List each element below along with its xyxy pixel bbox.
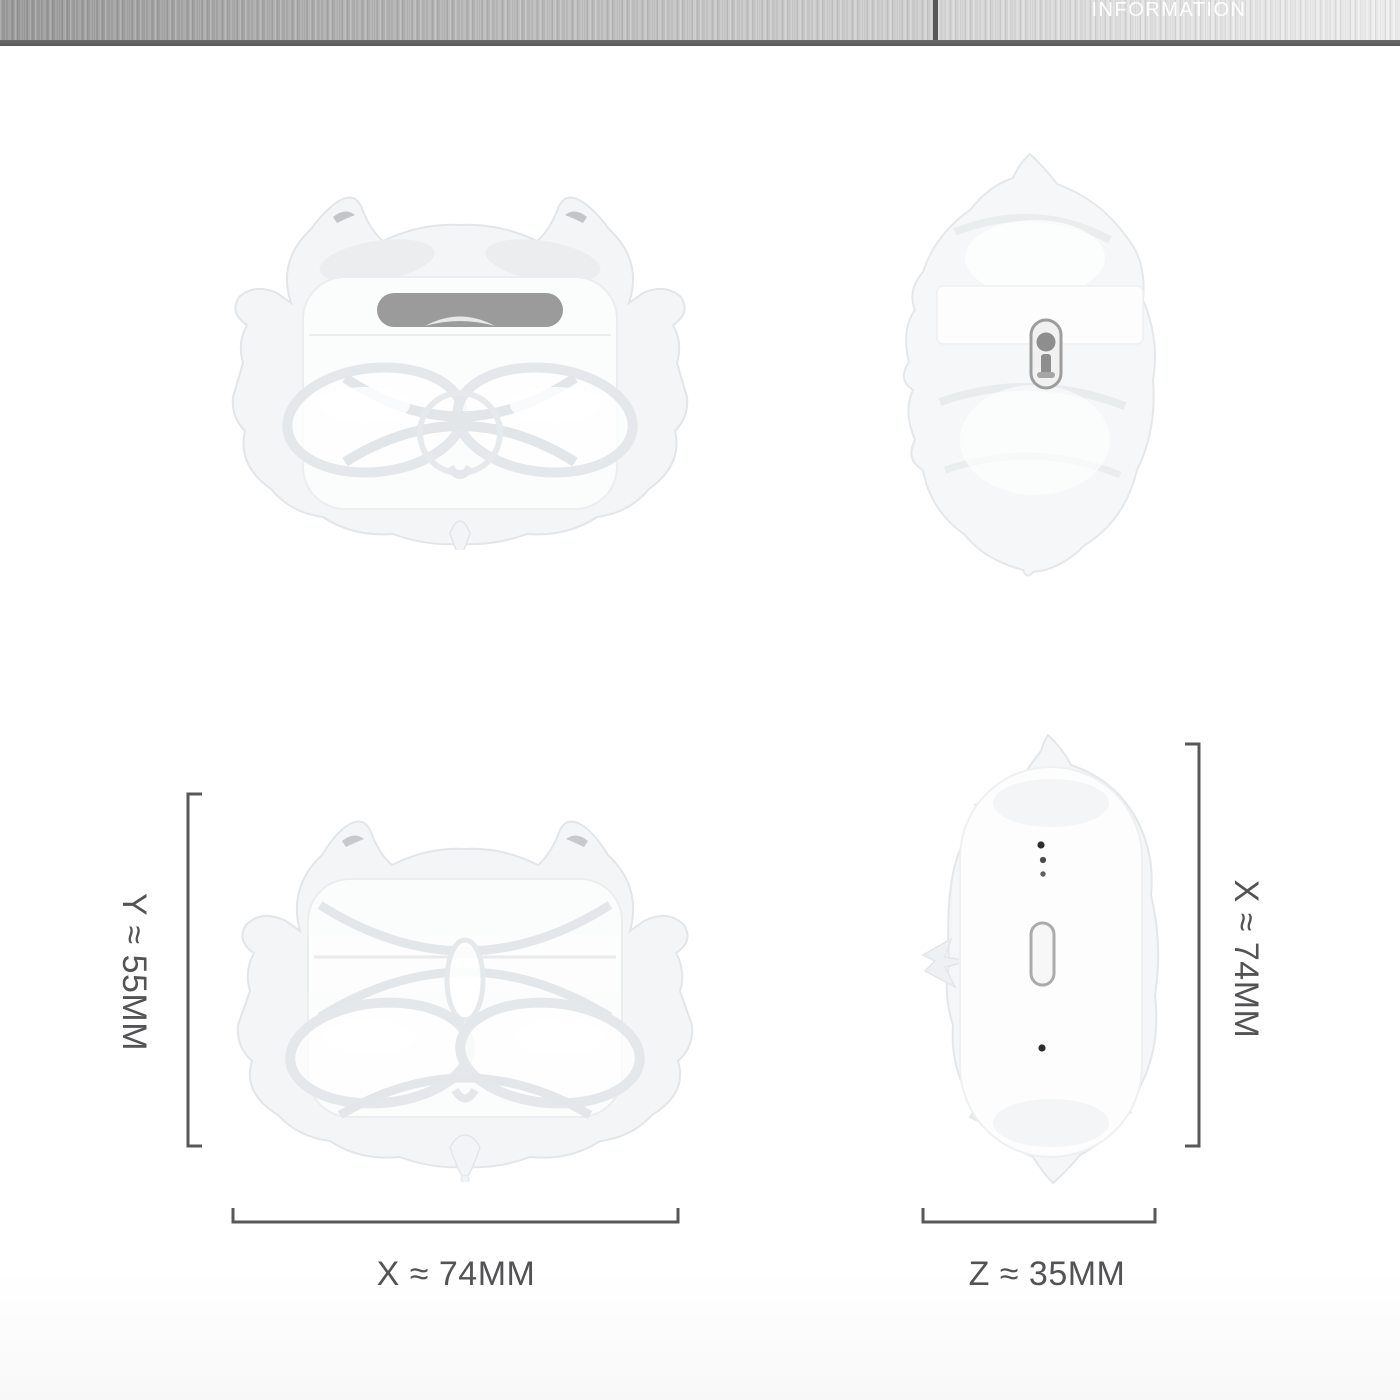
- depth-dimension-bracket: [923, 1208, 1155, 1222]
- height-dimension-bracket: [188, 794, 202, 1146]
- header-title: INFORMATION: [938, 0, 1400, 23]
- front-open-view: [225, 165, 695, 550]
- dimension-overlay: [0, 0, 1400, 1400]
- hinge-pin: [1031, 320, 1061, 388]
- height-dimension-label: Y ≈ 55MM: [112, 822, 156, 1122]
- header-metal-left: [0, 0, 933, 40]
- width-front-dimension-bracket: [233, 1208, 678, 1222]
- clear-shell: [904, 154, 1155, 576]
- width-side-dimension-label: X ≈ 74MM: [1224, 809, 1268, 1109]
- header-bar: INFORMATION: [0, 0, 1400, 46]
- lower-dot: [1038, 1044, 1045, 1051]
- product-info-page: INFORMATION: [0, 0, 1400, 1400]
- header-bottom-border: [0, 40, 1400, 46]
- depth-dimension-label: Z ≈ 35MM: [897, 1252, 1197, 1296]
- width-front-dimension-label: X ≈ 74MM: [306, 1252, 606, 1296]
- setup-button: [1031, 923, 1054, 985]
- hinge-slot: [377, 293, 563, 327]
- side-view: [885, 140, 1175, 585]
- top-view: [915, 725, 1185, 1195]
- width-side-dimension-bracket: [1185, 744, 1199, 1146]
- front-closed-view: [230, 785, 700, 1182]
